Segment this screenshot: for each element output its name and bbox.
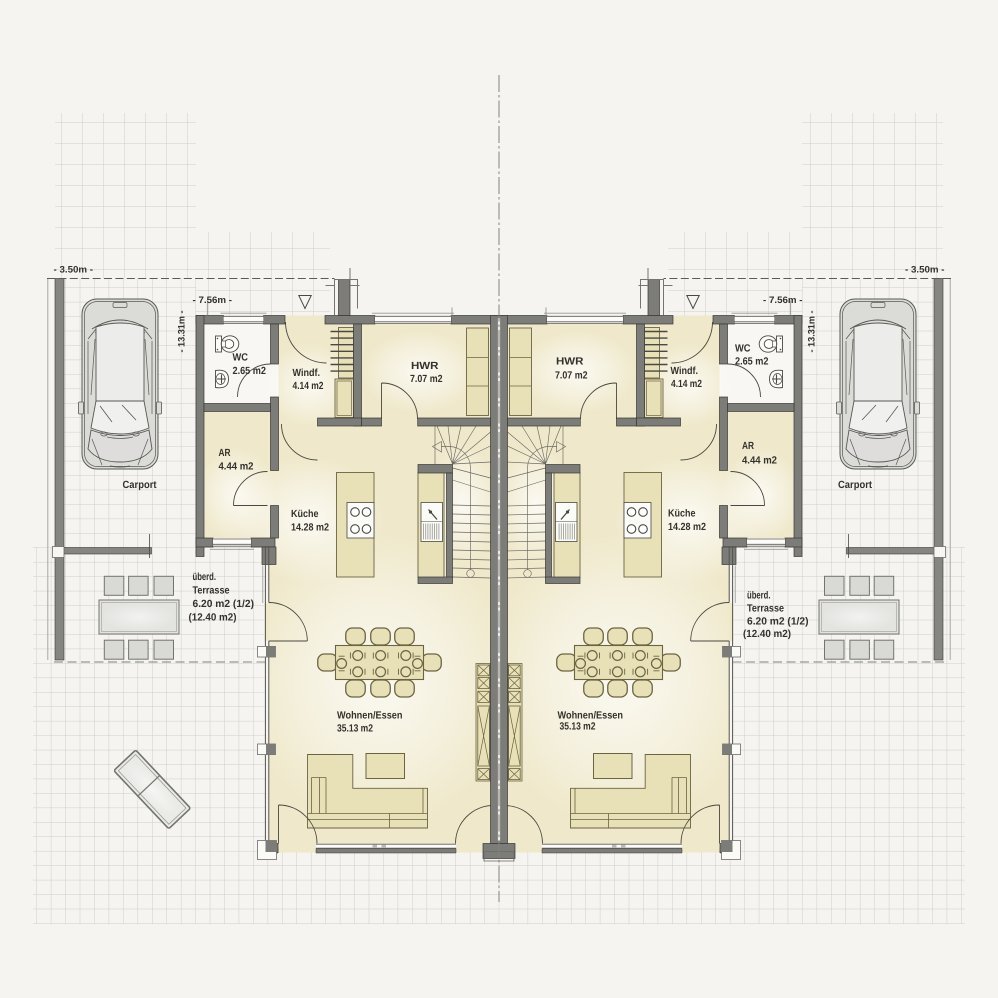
svg-text:WC: WC bbox=[233, 353, 249, 364]
svg-text:- 7.56m -: - 7.56m - bbox=[763, 294, 803, 305]
svg-text:(12.40 m2): (12.40 m2) bbox=[189, 613, 237, 624]
svg-text:6.20 m2 (1/2): 6.20 m2 (1/2) bbox=[193, 599, 255, 610]
svg-text:Küche: Küche bbox=[291, 509, 319, 520]
svg-text:HWR: HWR bbox=[411, 361, 439, 372]
svg-text:35.13 m2: 35.13 m2 bbox=[337, 724, 373, 735]
svg-text:AR: AR bbox=[742, 441, 754, 452]
svg-text:AR: AR bbox=[219, 448, 231, 459]
svg-text:Windf.: Windf. bbox=[293, 368, 321, 379]
svg-text:HWR: HWR bbox=[556, 357, 584, 368]
svg-text:35.13 m2: 35.13 m2 bbox=[560, 722, 596, 733]
svg-text:Wohnen/Essen: Wohnen/Essen bbox=[558, 711, 624, 722]
svg-text:- 13.31m -: - 13.31m - bbox=[806, 311, 817, 353]
svg-text:2.65 m2: 2.65 m2 bbox=[233, 366, 267, 377]
svg-text:- 7.56m -: - 7.56m - bbox=[193, 294, 233, 305]
svg-text:überd.: überd. bbox=[193, 572, 217, 583]
svg-text:(12.40 m2): (12.40 m2) bbox=[743, 629, 791, 640]
svg-text:Terrasse: Terrasse bbox=[193, 586, 230, 597]
svg-text:- 3.50m -: - 3.50m - bbox=[54, 264, 94, 275]
svg-text:Küche: Küche bbox=[668, 509, 696, 520]
svg-text:2.65 m2: 2.65 m2 bbox=[735, 357, 769, 368]
svg-text:WC: WC bbox=[735, 344, 751, 355]
svg-text:7.07 m2: 7.07 m2 bbox=[410, 374, 443, 385]
svg-text:Carport: Carport bbox=[123, 480, 157, 491]
svg-text:Wohnen/Essen: Wohnen/Essen bbox=[337, 711, 403, 722]
svg-text:überd.: überd. bbox=[747, 591, 771, 602]
svg-text:- 13.31m -: - 13.31m - bbox=[176, 311, 187, 353]
svg-text:Carport: Carport bbox=[838, 480, 872, 491]
svg-text:7.07 m2: 7.07 m2 bbox=[555, 371, 588, 382]
svg-text:6.20 m2 (1/2): 6.20 m2 (1/2) bbox=[747, 617, 809, 628]
svg-text:4.14 m2: 4.14 m2 bbox=[293, 381, 324, 392]
svg-text:4.44 m2: 4.44 m2 bbox=[742, 456, 777, 467]
svg-text:4.14 m2: 4.14 m2 bbox=[671, 379, 702, 390]
svg-text:Terrasse: Terrasse bbox=[747, 604, 784, 615]
svg-text:4.44 m2: 4.44 m2 bbox=[219, 462, 254, 473]
svg-text:14.28 m2: 14.28 m2 bbox=[291, 523, 329, 534]
svg-text:- 3.50m -: - 3.50m - bbox=[905, 264, 945, 275]
svg-text:14.28 m2: 14.28 m2 bbox=[668, 522, 706, 533]
svg-text:Windf.: Windf. bbox=[671, 366, 699, 377]
